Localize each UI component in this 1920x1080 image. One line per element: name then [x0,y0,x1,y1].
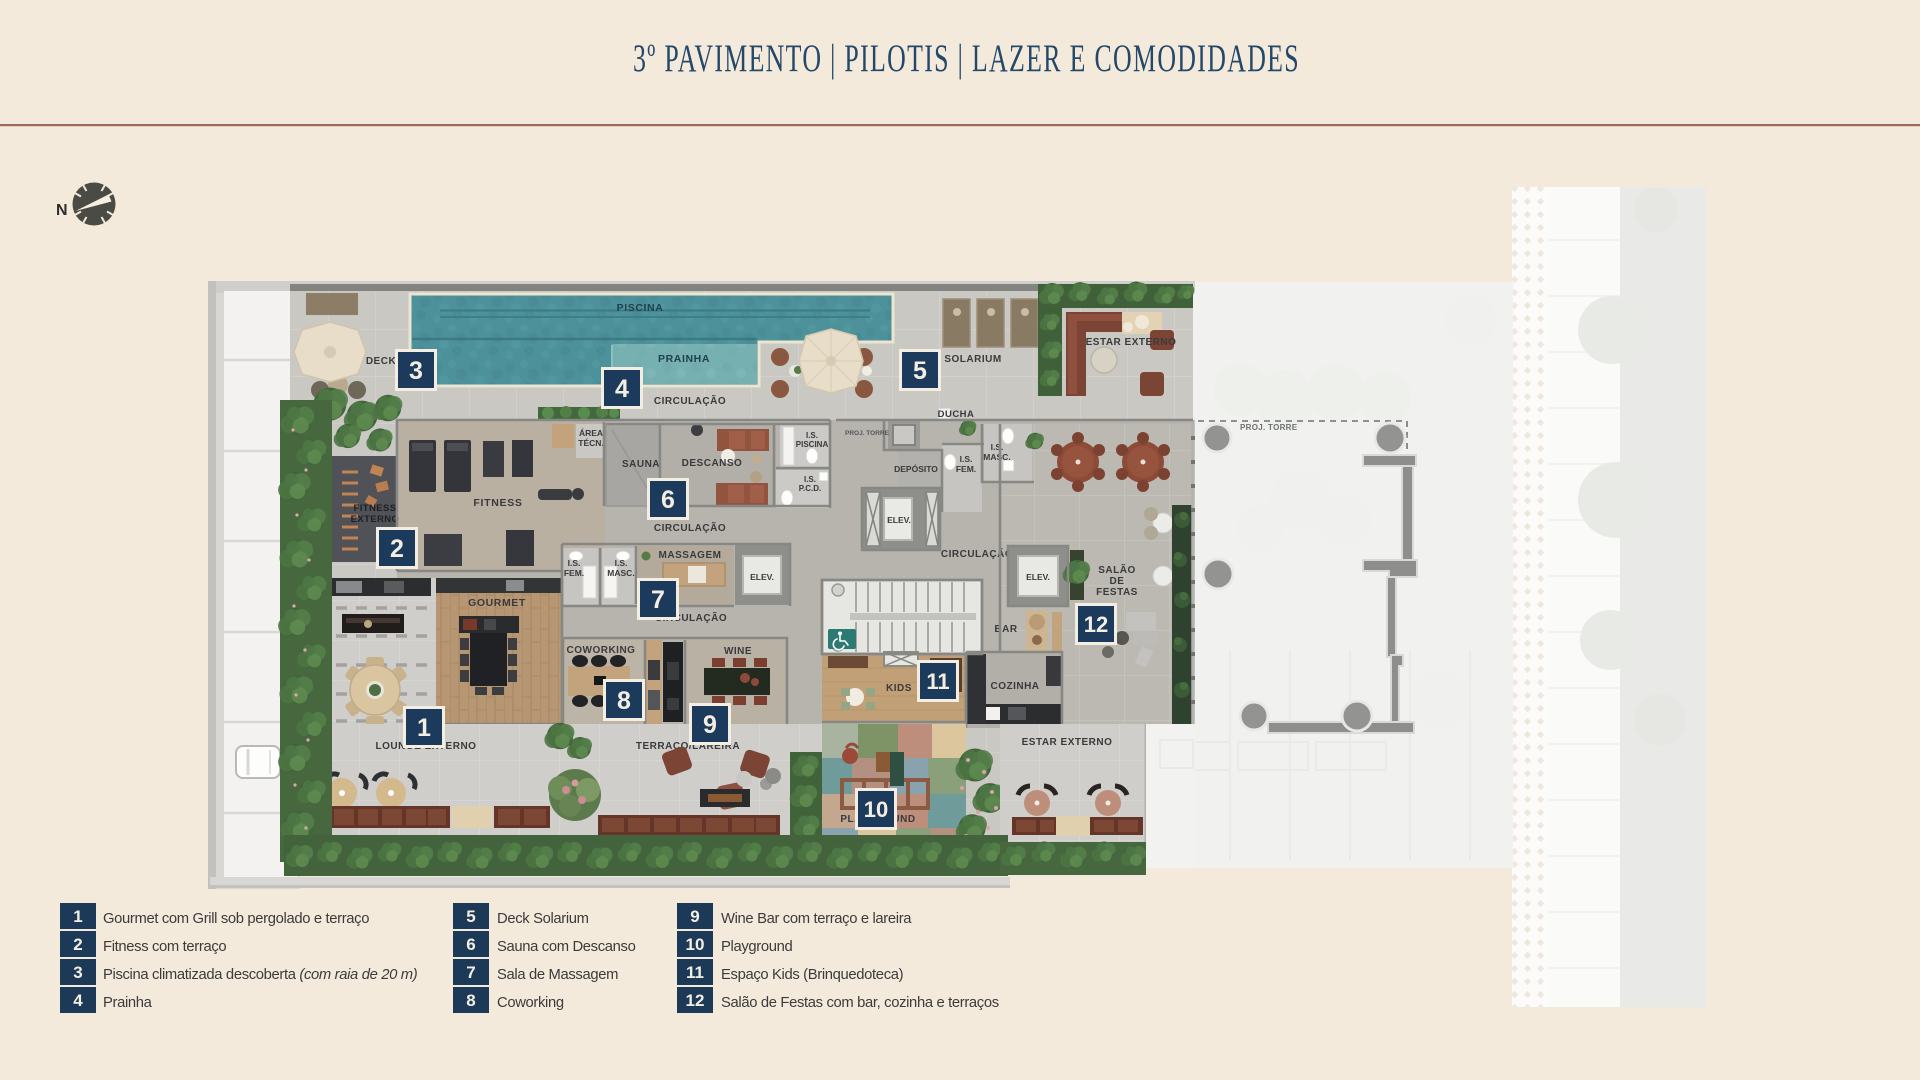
svg-text:6: 6 [661,486,675,514]
svg-text:PRAINHA: PRAINHA [658,353,710,365]
svg-text:MASC.: MASC. [607,568,634,578]
svg-text:I.S.: I.S. [806,431,818,440]
svg-text:ÁREA: ÁREA [579,428,603,438]
svg-text:COZINHA: COZINHA [990,681,1039,692]
svg-text:I.S.: I.S. [568,558,581,568]
svg-text:FITNESS: FITNESS [473,497,522,509]
svg-text:I.S.: I.S. [960,454,973,464]
svg-text:PROJ. TORRE: PROJ. TORRE [845,430,890,437]
svg-text:ELEV.: ELEV. [887,515,911,525]
svg-text:FEM.: FEM. [564,568,584,578]
svg-text:Piscina climatizada descoberta: Piscina climatizada descoberta (com raia… [103,967,418,983]
svg-text:BAR: BAR [994,624,1017,635]
svg-text:I.S.: I.S. [615,558,628,568]
svg-text:5: 5 [466,907,475,926]
svg-text:11: 11 [686,963,704,982]
svg-text:ESTAR EXTERNO: ESTAR EXTERNO [1086,337,1177,348]
svg-text:12: 12 [686,991,705,1010]
svg-text:Sauna com Descanso: Sauna com Descanso [497,939,636,955]
svg-text:4: 4 [73,991,83,1010]
svg-text:CIRCULAÇÃO: CIRCULAÇÃO [654,394,726,407]
svg-text:7: 7 [651,586,665,614]
svg-text:FITNESS: FITNESS [354,503,397,514]
svg-text:PISCINA: PISCINA [796,440,829,449]
svg-text:DEPÓSITO: DEPÓSITO [894,463,938,474]
svg-text:Deck Solarium: Deck Solarium [497,911,589,927]
svg-text:SALÃO: SALÃO [1098,563,1136,576]
svg-text:I.S.: I.S. [991,442,1004,452]
svg-text:ELEV.: ELEV. [750,572,774,582]
svg-text:1: 1 [417,714,431,742]
svg-text:9: 9 [690,907,699,926]
svg-text:CIRCULAÇÃO: CIRCULAÇÃO [654,521,726,534]
svg-text:3: 3 [73,963,82,982]
svg-text:Espaço Kids (Brinquedoteca): Espaço Kids (Brinquedoteca) [721,967,904,983]
svg-text:PISCINA: PISCINA [617,302,664,314]
svg-text:10: 10 [686,935,705,954]
svg-text:MASSAGEM: MASSAGEM [659,550,722,561]
svg-text:N: N [56,202,68,219]
svg-text:DE: DE [1110,576,1125,587]
svg-text:CIRCULAÇÃO: CIRCULAÇÃO [941,547,1013,560]
svg-text:FESTAS: FESTAS [1096,587,1138,598]
svg-text:KIDS: KIDS [886,683,912,694]
svg-text:WINE: WINE [724,646,752,657]
svg-text:COWORKING: COWORKING [567,645,636,656]
svg-text:12: 12 [1084,612,1108,637]
svg-text:9: 9 [703,711,717,739]
svg-text:ELEV.: ELEV. [1026,572,1050,582]
svg-text:P.C.D.: P.C.D. [799,484,822,493]
svg-text:11: 11 [926,669,949,694]
svg-text:4: 4 [615,375,629,403]
svg-text:ESTAR EXTERNO: ESTAR EXTERNO [1022,737,1113,748]
svg-text:7: 7 [466,963,475,982]
svg-text:Coworking: Coworking [497,995,564,1011]
svg-text:Fitness com terraço: Fitness com terraço [103,939,226,955]
svg-text:Playground: Playground [721,939,792,955]
svg-text:Salão de Festas com bar, cozin: Salão de Festas com bar, cozinha e terra… [721,995,999,1011]
svg-text:SOLARIUM: SOLARIUM [944,354,1001,365]
svg-text:8: 8 [466,991,475,1010]
svg-text:2: 2 [73,935,82,954]
svg-text:5: 5 [913,357,927,385]
svg-text:Gourmet com Grill sob pergolad: Gourmet com Grill sob pergolado e terraç… [103,911,369,927]
svg-text:Prainha: Prainha [103,995,153,1011]
svg-text:2: 2 [390,535,404,563]
svg-text:EXTERNO: EXTERNO [351,514,400,525]
svg-text:3º PAVIMENTO | PILOTIS | LAZER: 3º PAVIMENTO | PILOTIS | LAZER E COMODID… [633,37,1300,80]
svg-text:PROJ. TORRE: PROJ. TORRE [1240,423,1298,432]
svg-text:Sala de Massagem: Sala de Massagem [497,967,618,983]
svg-text:FEM.: FEM. [956,464,976,474]
svg-text:10: 10 [864,797,888,822]
svg-text:I.S.: I.S. [804,475,816,484]
svg-text:6: 6 [466,935,475,954]
svg-text:MASC.: MASC. [983,452,1010,462]
svg-text:TÉCN.: TÉCN. [578,438,604,448]
svg-text:GOURMET: GOURMET [468,597,526,609]
svg-text:SAUNA: SAUNA [622,459,660,470]
svg-text:Wine Bar com terraço e lareira: Wine Bar com terraço e lareira [721,911,912,927]
svg-text:DESCANSO: DESCANSO [682,458,743,469]
svg-text:DECK: DECK [366,356,397,367]
svg-text:1: 1 [73,907,82,926]
svg-text:DUCHA: DUCHA [938,409,975,420]
svg-text:3: 3 [409,357,423,385]
svg-text:8: 8 [617,687,631,715]
